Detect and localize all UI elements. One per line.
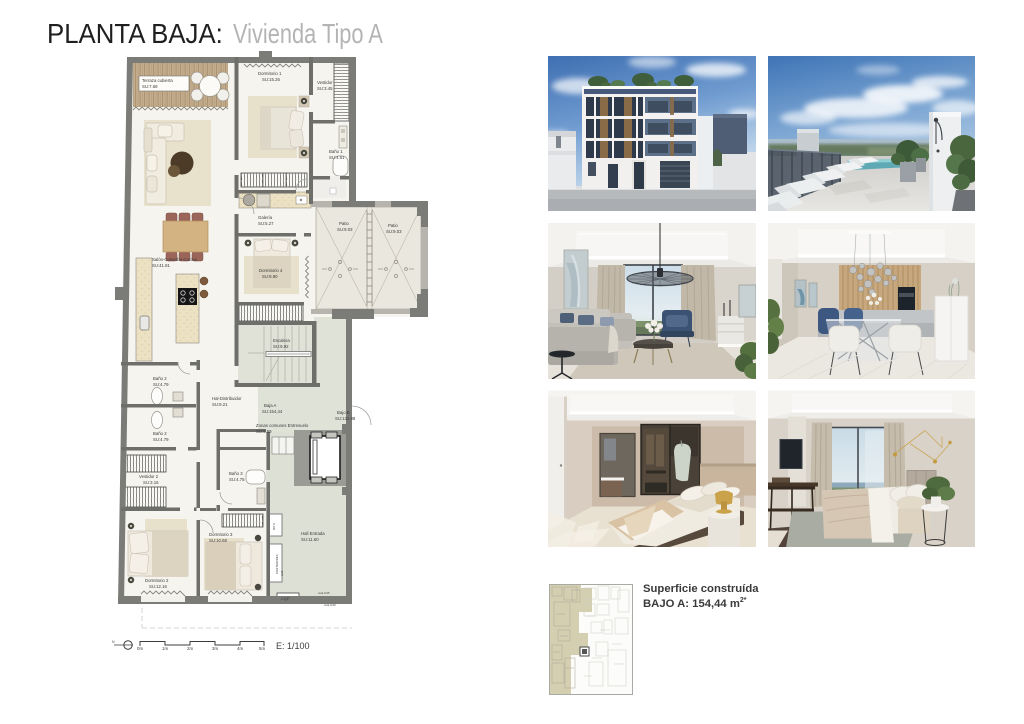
- svg-text:0m: 0m: [137, 646, 143, 651]
- svg-text:Bajo B: Bajo B: [337, 410, 350, 415]
- svg-text:Baja A: Baja A: [264, 403, 277, 408]
- svg-text:4m: 4m: [237, 646, 243, 651]
- svg-text:CQP: CQP: [281, 596, 290, 601]
- svg-text:Dormitorio 4: Dormitorio 4: [259, 268, 283, 273]
- svg-text:Galería: Galería: [258, 215, 273, 220]
- svg-text:SU:4.75: SU:4.75: [229, 477, 245, 482]
- svg-text:Patio: Patio: [339, 221, 349, 226]
- svg-text:SU:3.45: SU:3.45: [317, 86, 333, 91]
- svg-text:SU:132.88: SU:132.88: [335, 416, 356, 421]
- svg-text:cota 0.00: cota 0.00: [324, 603, 336, 607]
- svg-text:Patio: Patio: [388, 223, 398, 228]
- svg-text:SU:15.26: SU:15.26: [262, 77, 281, 82]
- svg-text:SU:5.89: SU:5.89: [256, 429, 272, 434]
- svg-text:1m: 1m: [162, 646, 168, 651]
- svg-text:SU:41.81: SU:41.81: [152, 263, 171, 268]
- svg-text:Baño 2: Baño 2: [153, 431, 167, 436]
- svg-text:SU:7.68: SU:7.68: [142, 84, 158, 89]
- svg-text:SU:9.90: SU:9.90: [262, 274, 278, 279]
- svg-text:Baño 3: Baño 3: [229, 471, 243, 476]
- svg-text:Baño 1: Baño 1: [329, 149, 343, 154]
- svg-text:Dormitorio 3: Dormitorio 3: [209, 532, 233, 537]
- svg-text:cota 0.05: cota 0.05: [318, 591, 330, 595]
- svg-text:Escalera: Escalera: [273, 338, 290, 343]
- svg-text:SU:10.68: SU:10.68: [209, 538, 228, 543]
- svg-text:5m: 5m: [259, 646, 265, 651]
- svg-text:3m: 3m: [212, 646, 218, 651]
- svg-text:Dormitorio 2: Dormitorio 2: [145, 578, 169, 583]
- svg-text:Terraza cubierta: Terraza cubierta: [142, 78, 173, 83]
- svg-text:SU:3.16: SU:3.16: [143, 480, 159, 485]
- svg-text:Hal-Distribuidor: Hal-Distribuidor: [212, 396, 242, 401]
- svg-text:RITU: RITU: [272, 523, 276, 530]
- svg-text:Hall Entrada: Hall Entrada: [301, 531, 325, 536]
- svg-text:Salón-Comedor-Cocina: Salón-Comedor-Cocina: [152, 257, 198, 262]
- svg-text:E: 1/100: E: 1/100: [276, 641, 310, 651]
- svg-text:SU:9.03: SU:9.03: [386, 229, 402, 234]
- svg-text:Dormitorio 1: Dormitorio 1: [258, 71, 282, 76]
- svg-text:SU:9.92: SU:9.92: [273, 344, 289, 349]
- svg-text:SU:154,44: SU:154,44: [262, 409, 283, 414]
- svg-text:2m: 2m: [187, 646, 193, 651]
- svg-text:Baño 2: Baño 2: [153, 376, 167, 381]
- svg-text:SU:12.16: SU:12.16: [149, 584, 168, 589]
- svg-text:SU:5.27: SU:5.27: [258, 221, 274, 226]
- svg-text:LUZ: LUZ: [280, 570, 284, 576]
- svg-text:Zonas comunes Entresuelo: Zonas comunes Entresuelo: [256, 423, 309, 428]
- svg-text:SU:4.51: SU:4.51: [329, 155, 345, 160]
- svg-text:N: N: [112, 640, 115, 644]
- svg-text:SU:9.21: SU:9.21: [212, 402, 228, 407]
- svg-text:SU:9.03: SU:9.03: [337, 227, 353, 232]
- svg-text:SU:4.79: SU:4.79: [153, 437, 169, 442]
- svg-text:SU:4.79: SU:4.79: [153, 382, 169, 387]
- svg-text:Vestidor: Vestidor: [317, 80, 333, 85]
- svg-text:CONTADORES: CONTADORES: [275, 554, 279, 574]
- svg-text:SU:11.60: SU:11.60: [301, 537, 319, 542]
- svg-text:Vestidor 2: Vestidor 2: [139, 474, 159, 479]
